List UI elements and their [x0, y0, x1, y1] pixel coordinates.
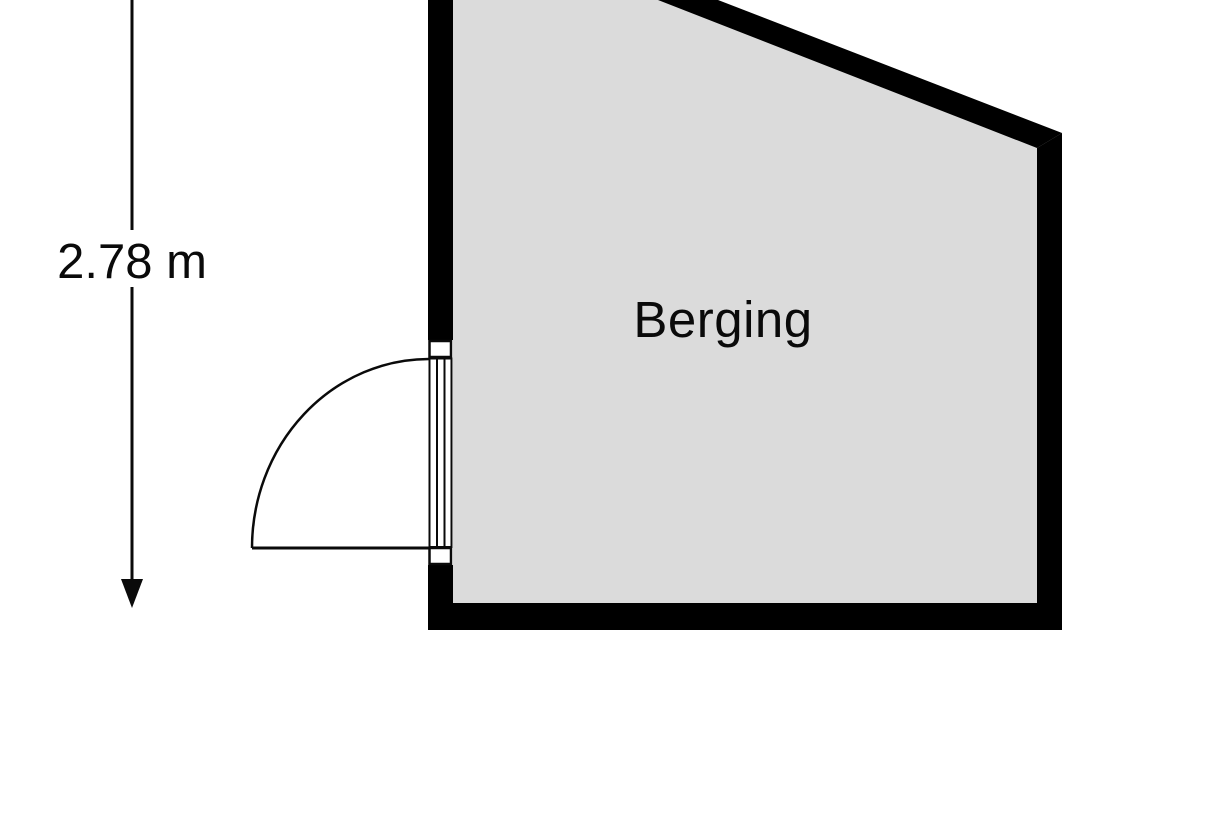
door-symbol — [252, 340, 453, 565]
room-label: Berging — [633, 291, 812, 348]
door-jamb-top — [430, 341, 452, 357]
wall-bottom — [428, 603, 1062, 630]
door-leaf — [430, 359, 452, 548]
dimension-arrowhead-icon — [121, 579, 143, 608]
dimension-label: 2.78 m — [57, 235, 207, 289]
wall-right — [1037, 133, 1062, 630]
door-jamb-bottom — [430, 548, 452, 564]
door-swing-arc-icon — [252, 359, 429, 548]
dimension-indicator: 2.78 m — [57, 0, 207, 608]
floor-plan: 2.78 m Berging — [0, 0, 1220, 813]
wall-left-upper — [428, 0, 453, 340]
